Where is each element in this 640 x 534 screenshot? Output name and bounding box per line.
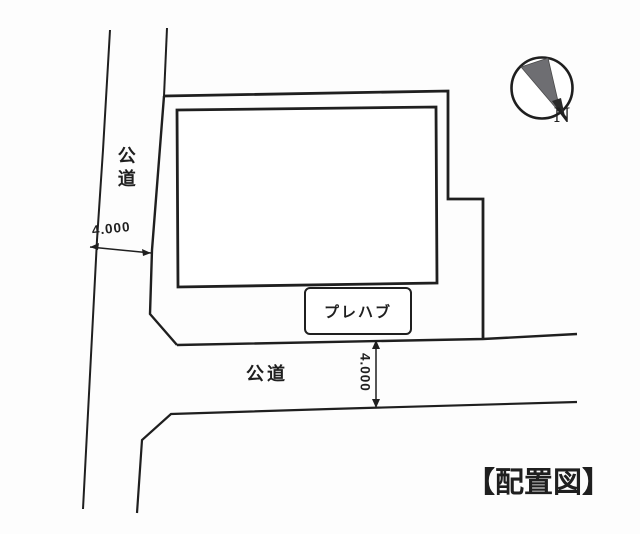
left-road-dimension-arrow-right <box>142 249 151 256</box>
bottom-road-label: 公道 <box>246 365 288 385</box>
left-road-dimension-arrow-left <box>90 243 99 250</box>
north-indicator-label: N <box>554 103 570 127</box>
bottom-road-dimension-text: 4.000 <box>357 344 372 400</box>
left-road-dimension-line <box>90 247 151 253</box>
prefab-building: プレハブ <box>304 287 412 335</box>
left-road-east-edge-line <box>164 28 167 96</box>
site-plan-linework <box>0 0 640 534</box>
site-west-boundary-line <box>150 96 177 345</box>
building-outline <box>177 107 437 287</box>
plan-title: 【配置図】 <box>466 468 611 500</box>
left-road-label: 公道 <box>115 146 135 192</box>
site-plan-canvas: プレハブ 公道 4.000 公道 4.000 N 【配置図】 <box>0 0 640 534</box>
prefab-label: プレハブ <box>324 301 392 322</box>
left-road-west-edge-line <box>83 30 110 509</box>
